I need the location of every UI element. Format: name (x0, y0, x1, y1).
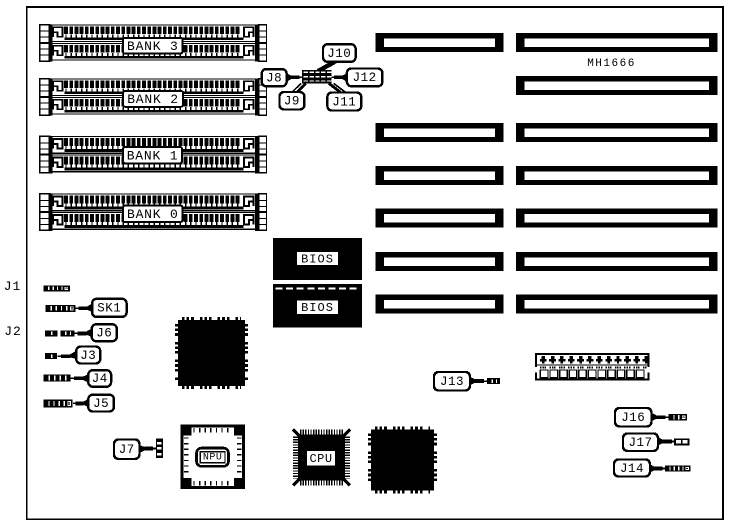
svg-text:BANK 2: BANK 2 (127, 92, 179, 107)
svg-text:J6: J6 (96, 327, 112, 341)
svg-text:J11: J11 (332, 95, 356, 109)
svg-text:J9: J9 (284, 95, 300, 109)
svg-text:CPU: CPU (309, 452, 332, 466)
svg-text:J8: J8 (266, 72, 282, 86)
svg-text:SK1: SK1 (97, 302, 121, 316)
svg-text:BANK 1: BANK 1 (127, 149, 179, 164)
svg-text:BIOS: BIOS (301, 301, 334, 315)
svg-text:J16: J16 (621, 411, 645, 425)
svg-text:J13: J13 (440, 375, 464, 389)
svg-text:BANK 0: BANK 0 (127, 207, 179, 222)
svg-text:NPU: NPU (203, 452, 223, 463)
svg-text:BIOS: BIOS (301, 252, 334, 266)
svg-text:J12: J12 (353, 71, 377, 85)
svg-text:J1: J1 (4, 279, 22, 294)
svg-text:J7: J7 (119, 443, 135, 457)
svg-text:J5: J5 (93, 397, 109, 411)
svg-text:J2: J2 (4, 324, 22, 339)
svg-text:J4: J4 (92, 372, 108, 386)
svg-text:J17: J17 (628, 436, 652, 450)
svg-text:BANK 3: BANK 3 (127, 39, 179, 54)
svg-text:J10: J10 (327, 47, 351, 61)
svg-text:MH1666: MH1666 (587, 58, 636, 70)
svg-text:J14: J14 (620, 462, 644, 476)
svg-text:J3: J3 (80, 349, 96, 363)
